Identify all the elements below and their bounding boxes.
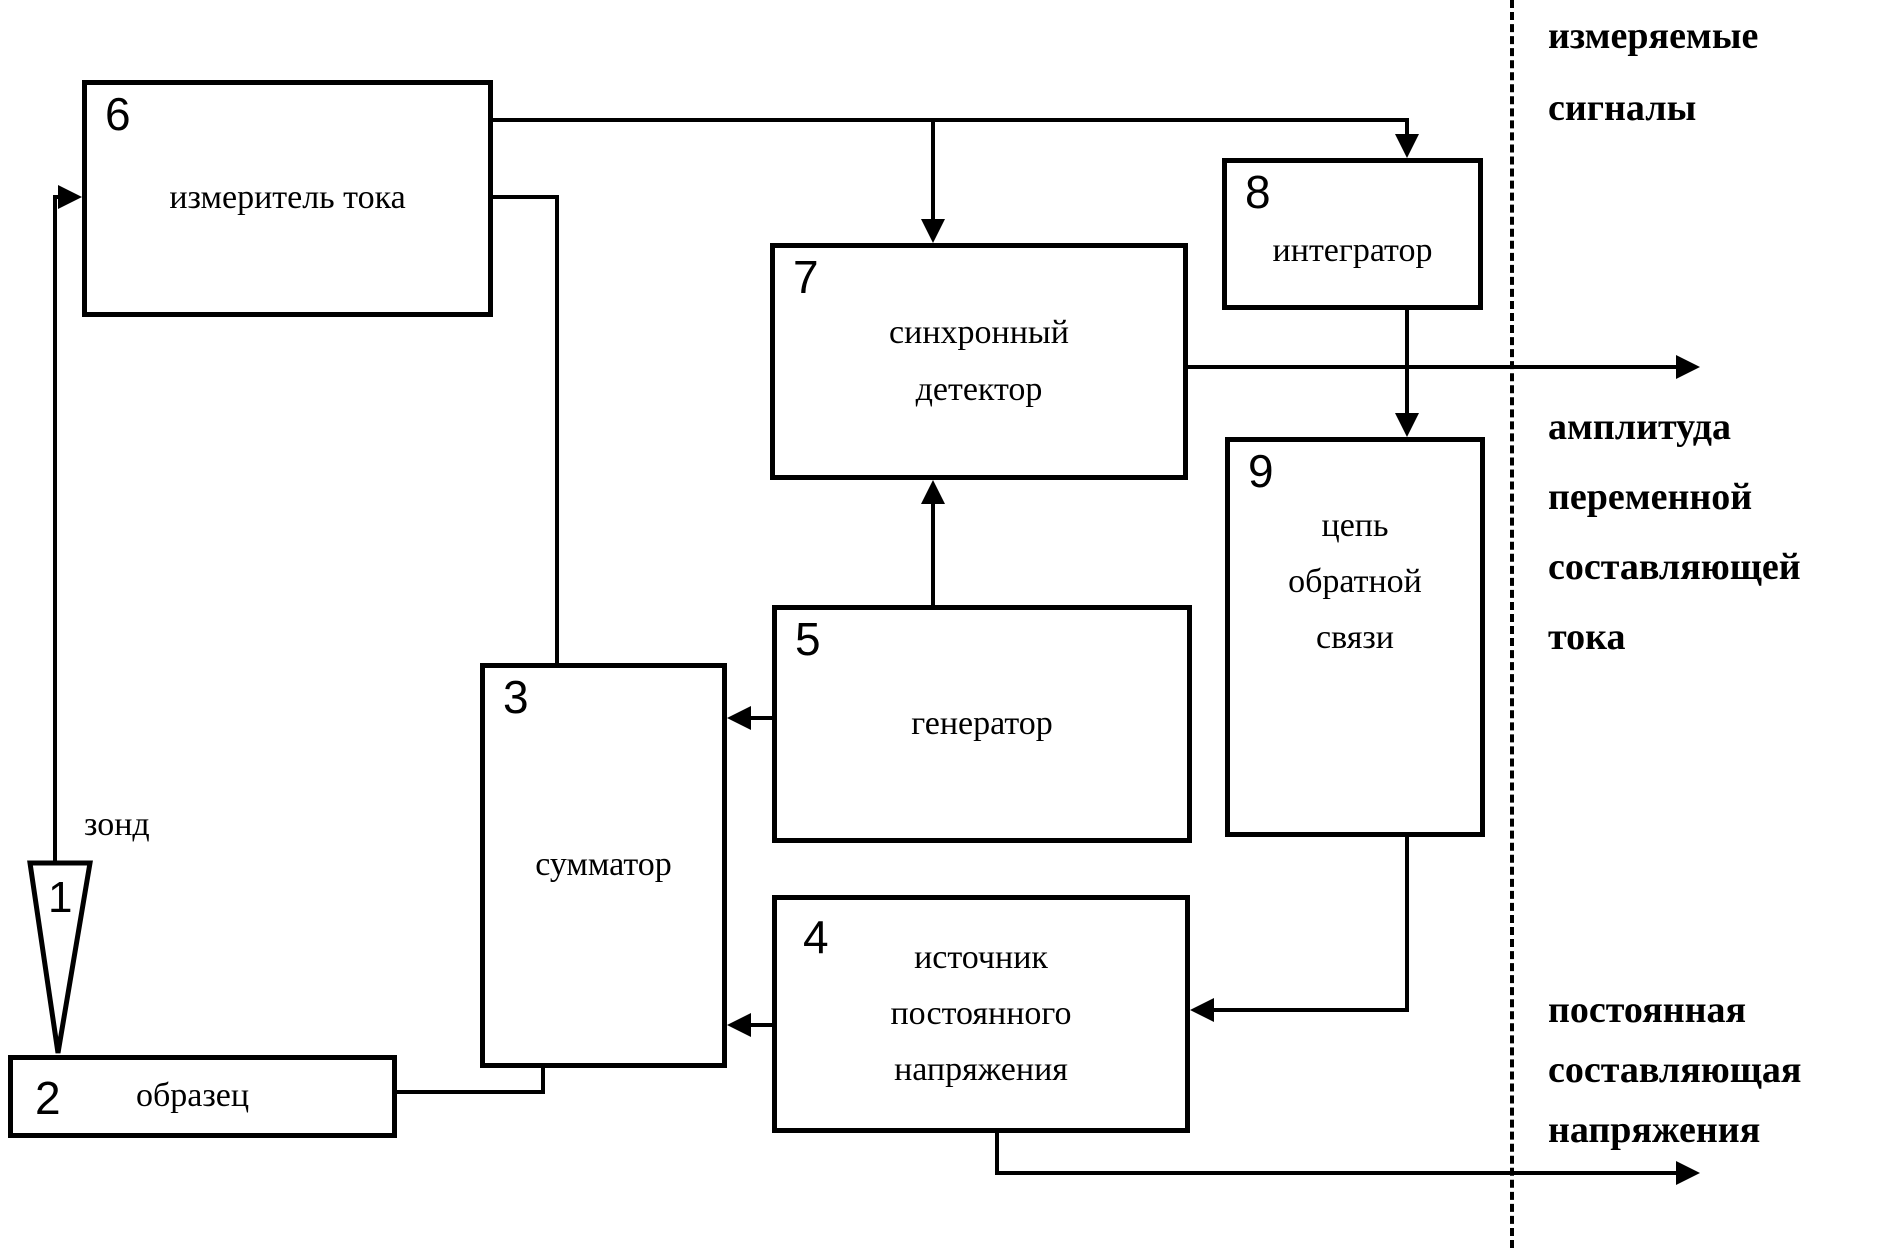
block-current-meter: 6 измеритель тока: [82, 80, 493, 317]
block-label: генератор: [911, 696, 1053, 752]
connector-source-to-summer: [751, 1023, 772, 1027]
arrowhead-into-detector-bottom: [921, 480, 945, 504]
probe-number: 1: [48, 876, 72, 920]
annotation-line: переменной: [1548, 462, 1801, 532]
block-dc-source: 4 источник постоянного напряжения: [772, 895, 1190, 1133]
block-number: 7: [793, 254, 819, 300]
dashed-separator: [1510, 0, 1514, 1248]
arrowhead-into-integrator-top: [1395, 134, 1419, 158]
connector-probe-to-meter-v: [53, 195, 57, 866]
block-feedback-chain: 9 цепь обратной связи: [1225, 437, 1485, 837]
connector-top-bus: [493, 118, 1409, 122]
connector-feedback-to-source-h: [1214, 1008, 1409, 1012]
annotation-line: постоянная: [1548, 980, 1801, 1040]
annotation-line: амплитуда: [1548, 392, 1801, 462]
block-label: синхронный детектор: [839, 305, 1119, 417]
connector-meter-to-summer-h: [493, 195, 559, 199]
arrowhead-into-detector-top: [921, 219, 945, 243]
connector-sample-to-summer-v: [541, 1068, 545, 1094]
connector-feedback-down: [1405, 837, 1409, 1012]
annotation-line: измеряемые: [1548, 0, 1758, 72]
connector-source-output-v: [995, 1133, 999, 1175]
probe-label: зонд: [84, 806, 150, 844]
annotation-line: тока: [1548, 602, 1801, 672]
annotation-line: составляющая: [1548, 1040, 1801, 1100]
connector-sample-to-summer-h: [397, 1090, 545, 1094]
connector-meter-to-summer-v: [555, 195, 559, 663]
block-integrator: 8 интегратор: [1222, 158, 1483, 310]
connector-generator-to-summer: [751, 716, 772, 720]
block-generator: 5 генератор: [772, 605, 1192, 843]
arrowhead-into-summer-lower: [727, 1013, 751, 1037]
annotation-measured-signals: измеряемые сигналы: [1548, 0, 1758, 144]
arrowhead-amplitude-output: [1676, 355, 1700, 379]
block-label: интегратор: [1273, 223, 1433, 279]
arrowhead-into-source-right: [1190, 998, 1214, 1022]
annotation-line: сигналы: [1548, 72, 1758, 144]
connector-generator-to-detector: [931, 504, 935, 605]
connector-detector-output: [1188, 365, 1676, 369]
arrowhead-into-summer-upper: [727, 706, 751, 730]
block-number: 9: [1248, 448, 1274, 494]
block-number: 2: [35, 1075, 61, 1121]
annotation-dc-component: постоянная составляющая напряжения: [1548, 980, 1801, 1160]
block-number: 5: [795, 616, 821, 662]
block-number: 3: [503, 674, 529, 720]
annotation-line: напряжения: [1548, 1100, 1801, 1160]
arrowhead-into-current-meter: [58, 185, 82, 209]
block-number: 4: [803, 914, 829, 960]
connector-integrator-to-feedback: [1405, 310, 1409, 413]
connector-bus-to-integrator: [1405, 118, 1409, 134]
block-label: измеритель тока: [169, 170, 405, 226]
connector-source-output-h: [995, 1171, 1676, 1175]
block-sample: 2 образец: [8, 1055, 397, 1138]
block-number: 6: [105, 91, 131, 137]
block-label: источник постоянного напряжения: [836, 930, 1126, 1098]
block-diagram: 6 измеритель тока 8 интегратор 7 синхрон…: [0, 0, 1893, 1248]
arrowhead-dc-output: [1676, 1161, 1700, 1185]
block-label: сумматор: [535, 837, 672, 893]
connector-bus-to-detector: [931, 118, 935, 219]
block-label: цепь обратной связи: [1255, 498, 1455, 666]
block-label: образец: [136, 1068, 249, 1124]
arrowhead-into-feedback-top: [1395, 413, 1419, 437]
block-sync-detector: 7 синхронный детектор: [770, 243, 1188, 480]
annotation-line: составляющей: [1548, 532, 1801, 602]
annotation-ac-amplitude: амплитуда переменной составляющей тока: [1548, 392, 1801, 672]
block-summer: 3 сумматор: [480, 663, 727, 1068]
block-number: 8: [1245, 169, 1271, 215]
